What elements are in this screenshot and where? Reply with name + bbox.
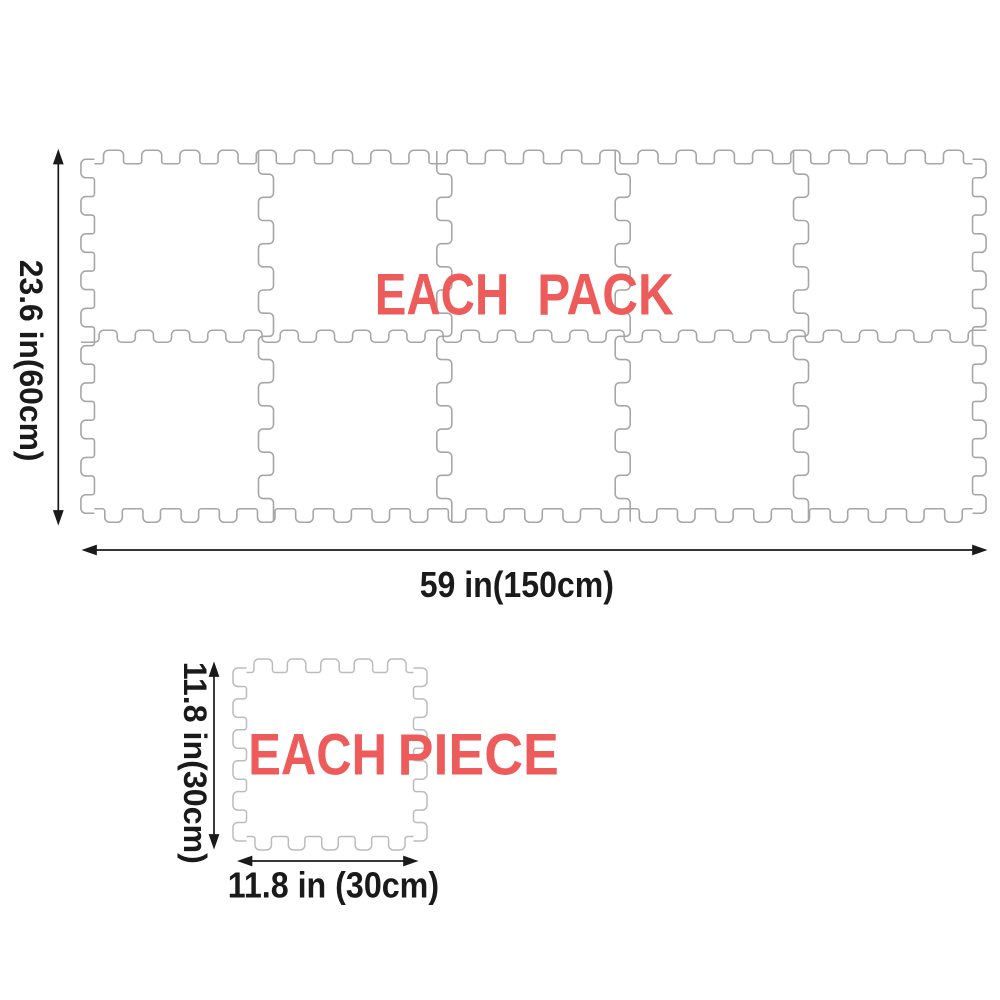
svg-text:EACH: EACH <box>375 263 509 328</box>
svg-text:EACH: EACH <box>248 723 387 788</box>
svg-text:PACK: PACK <box>537 263 674 328</box>
svg-text:11.8 in (30cm): 11.8 in (30cm) <box>228 866 439 906</box>
svg-text:PIECE: PIECE <box>398 722 559 787</box>
svg-text:59 in(150cm): 59 in(150cm) <box>420 565 614 605</box>
svg-text:11.8 in(30cm): 11.8 in(30cm) <box>177 662 213 864</box>
svg-text:23.6 in(60cm): 23.6 in(60cm) <box>13 260 49 462</box>
